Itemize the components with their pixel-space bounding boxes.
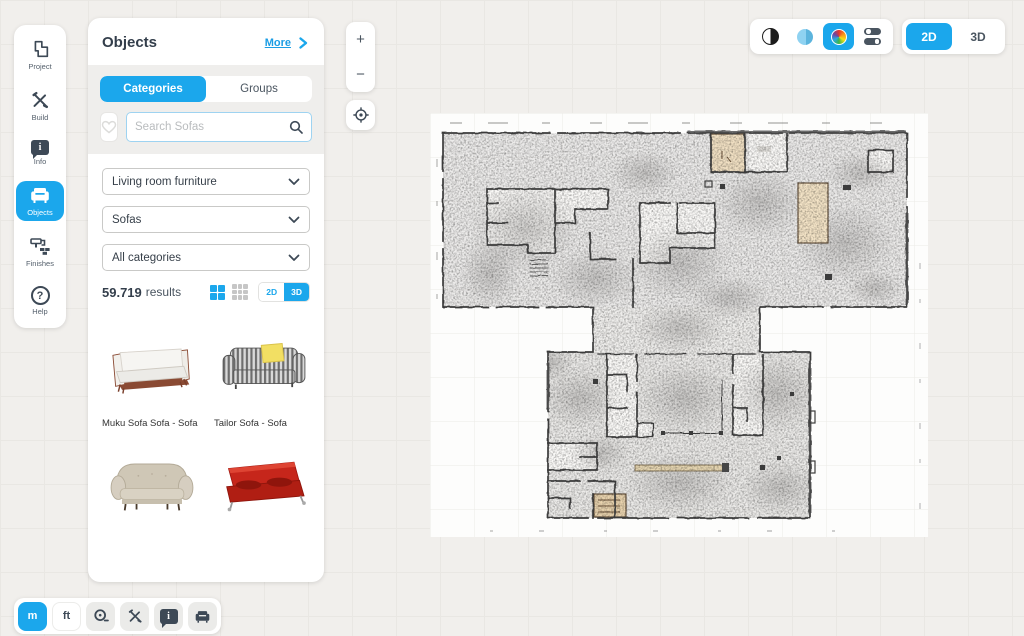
filter-subcategory[interactable]: All categories xyxy=(102,244,310,271)
main-sidebar: Project Build i Info Objects xyxy=(14,25,66,328)
product-card-beige-sofa[interactable] xyxy=(102,443,202,544)
info-bubble-icon: i xyxy=(31,140,49,155)
more-link[interactable]: More xyxy=(265,36,310,50)
filter-value: Living room furniture xyxy=(112,176,217,188)
results-count: 59.719 xyxy=(102,285,142,300)
render-mode-bar xyxy=(750,19,893,54)
sofa-icon xyxy=(193,608,212,625)
view-3d-button[interactable]: 3D xyxy=(955,23,1001,50)
render-mode-contrast-button[interactable] xyxy=(755,23,786,50)
thumb-2d-button[interactable]: 2D xyxy=(259,283,284,301)
heart-icon xyxy=(101,120,117,134)
filter-value: All categories xyxy=(112,252,181,264)
render-mode-monochrome-button[interactable] xyxy=(789,23,820,50)
render-settings-button[interactable] xyxy=(857,23,888,50)
view-2d-button[interactable]: 2D xyxy=(906,23,952,50)
objects-panel: Objects More Categories Groups Living ro… xyxy=(88,18,324,582)
thumbnail-dimension-toggle: 2D 3D xyxy=(258,282,310,302)
monochrome-icon xyxy=(797,29,813,45)
product-card-muku-sofa[interactable]: Muku Sofa Sofa - Sofa xyxy=(102,328,202,429)
product-card-red-sofa[interactable] xyxy=(214,443,314,544)
zoom-in-button[interactable]: + xyxy=(346,26,375,53)
product-image-white-wood-sofa xyxy=(102,328,202,410)
panel-title: Objects xyxy=(102,34,157,51)
sidebar-item-build[interactable]: Build xyxy=(16,86,64,126)
more-link-label: More xyxy=(265,37,291,49)
build-tools-icon xyxy=(126,607,144,625)
small-grid-view-icon[interactable] xyxy=(232,284,248,300)
product-image-beige-sofa xyxy=(102,443,202,525)
filter-furniture-type[interactable]: Sofas xyxy=(102,206,310,233)
chevron-right-icon xyxy=(296,36,310,50)
sidebar-item-label: Objects xyxy=(27,208,52,217)
zoom-controls: + − xyxy=(346,22,375,92)
search-icon[interactable] xyxy=(289,120,303,134)
floorplan-icon xyxy=(29,38,51,60)
measure-tool-button[interactable] xyxy=(86,602,115,631)
filter-value: Sofas xyxy=(112,214,141,226)
floorplan-canvas[interactable] xyxy=(430,113,928,537)
catalog-tabs: Categories Groups xyxy=(100,76,312,102)
center-view-button[interactable] xyxy=(346,100,375,130)
tape-measure-icon xyxy=(92,607,110,625)
sidebar-item-info[interactable]: i Info xyxy=(16,137,64,170)
bottom-toolbar: m ft i xyxy=(14,598,221,634)
results-label: results xyxy=(146,285,181,299)
filter-room-category[interactable]: Living room furniture xyxy=(102,168,310,195)
product-name xyxy=(214,533,314,544)
chevron-down-icon xyxy=(288,178,300,186)
thumb-3d-button[interactable]: 3D xyxy=(284,283,309,301)
product-name: Tailor Sofa - Sofa xyxy=(214,418,314,429)
toggles-icon xyxy=(864,28,881,46)
tab-categories[interactable]: Categories xyxy=(100,76,206,102)
build-tools-icon xyxy=(29,89,51,111)
sidebar-item-label: Help xyxy=(32,307,47,316)
search-field xyxy=(126,112,312,142)
sidebar-item-label: Project xyxy=(28,62,51,71)
product-name xyxy=(102,533,202,544)
favorites-button[interactable] xyxy=(100,112,118,142)
unit-meters-button[interactable]: m xyxy=(18,602,47,631)
chevron-down-icon xyxy=(288,254,300,262)
view-dimension-bar: 2D 3D xyxy=(902,19,1005,54)
info-tool-button[interactable]: i xyxy=(154,602,183,631)
tab-groups[interactable]: Groups xyxy=(206,76,312,102)
filter-strip: Categories Groups xyxy=(88,65,324,154)
product-name: Muku Sofa Sofa - Sofa xyxy=(102,418,202,429)
sidebar-item-project[interactable]: Project xyxy=(16,35,64,75)
product-image-striped-sofa xyxy=(214,328,314,410)
unit-feet-button[interactable]: ft xyxy=(52,602,81,631)
zoom-out-button[interactable]: − xyxy=(346,61,375,88)
sidebar-item-help[interactable]: ? Help xyxy=(16,283,64,320)
chevron-down-icon xyxy=(288,216,300,224)
sidebar-item-objects[interactable]: Objects xyxy=(16,181,64,221)
info-bubble-icon: i xyxy=(160,609,178,624)
large-grid-view-icon[interactable] xyxy=(210,285,225,300)
sidebar-item-label: Build xyxy=(32,113,49,122)
paint-roller-icon xyxy=(28,235,52,257)
sidebar-item-finishes[interactable]: Finishes xyxy=(16,232,64,272)
sidebar-item-label: Finishes xyxy=(26,259,54,268)
color-wheel-icon xyxy=(831,29,847,45)
objects-tool-button[interactable] xyxy=(188,602,217,631)
floorplan-scan xyxy=(430,113,928,537)
render-mode-color-button[interactable] xyxy=(823,23,854,50)
help-icon: ? xyxy=(31,286,50,305)
product-card-tailor-sofa[interactable]: Tailor Sofa - Sofa xyxy=(214,328,314,429)
sofa-icon xyxy=(28,184,52,206)
crosshair-target-icon xyxy=(352,106,370,124)
contrast-icon xyxy=(762,28,779,45)
product-image-red-sofa xyxy=(214,443,314,525)
search-input[interactable] xyxy=(135,121,289,133)
build-tool-button[interactable] xyxy=(120,602,149,631)
